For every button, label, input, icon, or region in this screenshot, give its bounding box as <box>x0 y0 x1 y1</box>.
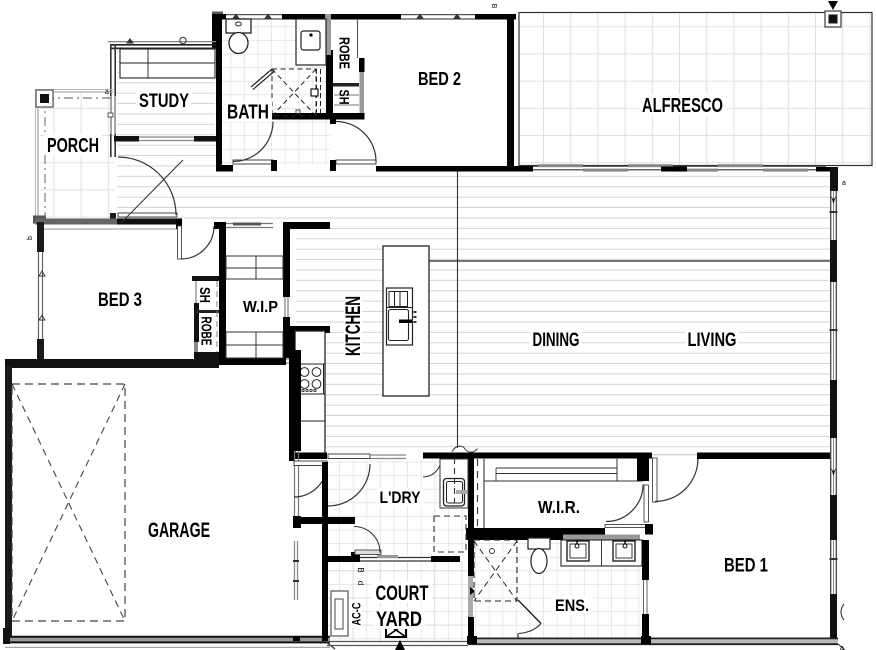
svg-text:b: b <box>27 236 34 240</box>
svg-text:BED 3: BED 3 <box>98 290 142 311</box>
svg-text:BED 2: BED 2 <box>418 69 461 89</box>
svg-text:d: d <box>356 581 365 585</box>
svg-text:STUDY: STUDY <box>139 90 189 112</box>
svg-text:a: a <box>842 180 846 187</box>
svg-text:BATH: BATH <box>227 102 269 124</box>
svg-text:B: B <box>490 4 497 9</box>
svg-text:BED 1: BED 1 <box>724 556 768 577</box>
svg-text:ENS.: ENS. <box>555 596 589 615</box>
svg-text:ROBE: ROBE <box>336 37 353 69</box>
svg-text:L'DRY: L'DRY <box>380 488 422 507</box>
svg-text:DINING: DINING <box>533 330 580 351</box>
svg-text:KITCHEN: KITCHEN <box>342 296 365 356</box>
svg-text:W.I.R.: W.I.R. <box>538 497 580 517</box>
svg-text:ROBE: ROBE <box>198 317 215 346</box>
svg-text:B: B <box>356 567 365 572</box>
svg-text:W.I.P: W.I.P <box>243 299 278 316</box>
svg-text:LIVING: LIVING <box>688 330 737 351</box>
svg-text:SH: SH <box>196 287 213 303</box>
svg-text:GARAGE: GARAGE <box>148 519 210 542</box>
svg-text:AC-C: AC-C <box>350 602 364 625</box>
svg-text:COURT: COURT <box>376 582 429 605</box>
svg-text:ALFRESCO: ALFRESCO <box>642 95 723 117</box>
svg-text:SH: SH <box>337 90 353 105</box>
svg-text:a: a <box>105 89 109 96</box>
svg-text:YARD: YARD <box>376 608 422 631</box>
svg-text:a: a <box>840 645 844 650</box>
svg-text:PORCH: PORCH <box>47 135 99 157</box>
